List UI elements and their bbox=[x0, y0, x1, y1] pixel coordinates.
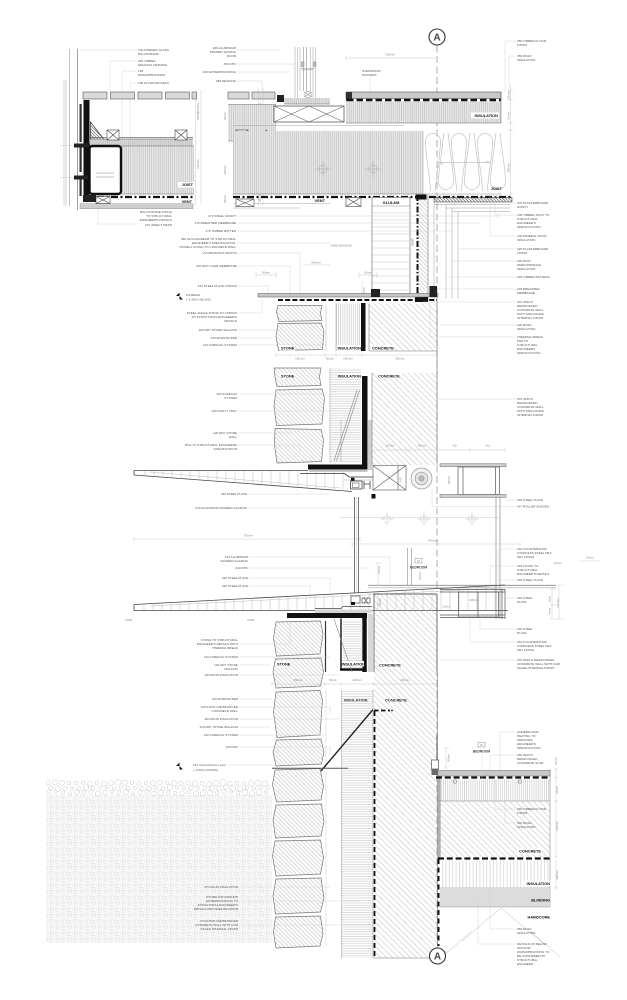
svg-text:HARDCORE: HARDCORE bbox=[528, 915, 551, 920]
svg-text:120 MORTAR BED: 120 MORTAR BED bbox=[212, 697, 239, 701]
svg-text:DOWELL FIXING TO CONCRETE WALL: DOWELL FIXING TO CONCRETE WALL bbox=[179, 245, 236, 249]
svg-text:205mm: 205mm bbox=[311, 261, 321, 265]
svg-text:A: A bbox=[433, 33, 440, 44]
svg-text:STONE: STONE bbox=[281, 374, 295, 379]
svg-text:SQ.: SQ. bbox=[486, 444, 491, 448]
svg-text:CONCRETE WALL: CONCRETE WALL bbox=[211, 709, 238, 713]
svg-text:120 RIGID INSULATION: 120 RIGID INSULATION bbox=[204, 673, 238, 677]
svg-text:UV RESISTANT MASTIC: UV RESISTANT MASTIC bbox=[202, 251, 238, 255]
svg-text:CONCRETE: CONCRETE bbox=[519, 849, 541, 854]
svg-text:150mm: 150mm bbox=[223, 165, 227, 175]
svg-text:+ 5.300 (+68.100): + 5.300 (+68.100) bbox=[186, 298, 211, 302]
svg-text:100mm: 100mm bbox=[352, 678, 362, 682]
svg-text:120 DPC: 120 DPC bbox=[225, 745, 238, 749]
svg-text:THERMAL BREAK: THERMAL BREAK bbox=[212, 646, 239, 650]
svg-text:50mm: 50mm bbox=[262, 271, 271, 275]
svg-text:240 STEEL PLATE: 240 STEEL PLATE bbox=[221, 492, 247, 496]
svg-text:270 TIMBER BATTEN: 270 TIMBER BATTEN bbox=[206, 229, 237, 233]
svg-text:100 PLYWOOD DECK: 100 PLYWOOD DECK bbox=[138, 81, 170, 85]
svg-text:75mm: 75mm bbox=[555, 785, 559, 794]
svg-text:LINING: LINING bbox=[517, 251, 528, 255]
svg-text:FINISH: FINISH bbox=[517, 43, 527, 47]
svg-text:FACED INTERNAL FINISH: FACED INTERNAL FINISH bbox=[517, 666, 554, 670]
svg-text:WALL: WALL bbox=[229, 435, 238, 439]
svg-text:BEDROOM: BEDROOM bbox=[410, 566, 427, 570]
svg-text:240 STEEL PLATE: 240 STEEL PLATE bbox=[222, 576, 248, 580]
svg-text:SPECIFICATION: SPECIFICATION bbox=[517, 351, 541, 355]
svg-text:US BEAM: US BEAM bbox=[186, 293, 200, 297]
svg-text:INSULATION: INSULATION bbox=[338, 374, 362, 379]
svg-text:427 ROLLER SHADES: 427 ROLLER SHADES bbox=[517, 505, 549, 509]
svg-text:JOIST: JOIST bbox=[491, 186, 503, 191]
svg-text:338mm: 338mm bbox=[385, 53, 395, 57]
svg-text:150mm: 150mm bbox=[293, 678, 303, 682]
svg-text:SQ.: SQ. bbox=[453, 444, 458, 448]
svg-text:DETAILS AND SPECIFICATION: DETAILS AND SPECIFICATION bbox=[194, 907, 238, 911]
svg-text:SPECIFICATION: SPECIFICATION bbox=[517, 225, 541, 229]
svg-text:+ 3.000 (+63.600): + 3.000 (+63.600) bbox=[193, 768, 218, 772]
svg-text:270 INSECT MESH: 270 INSECT MESH bbox=[145, 223, 172, 227]
svg-text:070 RIGID INSULATION: 070 RIGID INSULATION bbox=[204, 885, 238, 889]
svg-text:120 SURECAV SYSTEM: 120 SURECAV SYSTEM bbox=[204, 655, 239, 659]
svg-text:INSULATION: INSULATION bbox=[527, 881, 551, 886]
svg-text:200mm: 200mm bbox=[469, 598, 479, 602]
svg-text:10: 10 bbox=[417, 559, 421, 563]
svg-text:CONCRETE: CONCRETE bbox=[379, 663, 401, 668]
svg-text:20mm: 20mm bbox=[223, 111, 227, 120]
svg-text:160 WATERPROOFING: 160 WATERPROOFING bbox=[203, 70, 237, 74]
svg-text:PLATE: PLATE bbox=[517, 600, 527, 604]
svg-text:150mm: 150mm bbox=[556, 598, 560, 608]
svg-text:250 DPC: 250 DPC bbox=[223, 62, 236, 66]
svg-text:WATERPROOFING: WATERPROOFING bbox=[138, 73, 166, 77]
svg-text:50mm: 50mm bbox=[378, 597, 382, 606]
svg-text:210 ALUMINIUM FRAMED GLAZING: 210 ALUMINIUM FRAMED GLAZING bbox=[195, 506, 247, 510]
svg-text:CONCRETE SLAB: CONCRETE SLAB bbox=[517, 761, 543, 765]
svg-text:25mm: 25mm bbox=[554, 756, 558, 765]
svg-text:MEMBRANE: MEMBRANE bbox=[517, 291, 535, 295]
svg-text:INSULATION: INSULATION bbox=[517, 238, 535, 242]
svg-text:1500MM MIN: 1500MM MIN bbox=[196, 103, 200, 120]
svg-text:150mm: 150mm bbox=[295, 357, 305, 361]
svg-text:SPECIFICATION: SPECIFICATION bbox=[214, 447, 238, 451]
svg-text:INSULATION: INSULATION bbox=[517, 931, 535, 935]
svg-text:STONE: STONE bbox=[277, 662, 291, 667]
svg-text:9mm: 9mm bbox=[548, 595, 552, 602]
svg-text:STONE: STONE bbox=[281, 346, 295, 351]
svg-text:INSULATION: INSULATION bbox=[517, 327, 535, 331]
svg-text:410mm: 410mm bbox=[428, 539, 438, 543]
svg-text:25mm: 25mm bbox=[507, 90, 511, 99]
svg-text:DECKING FRAMING: DECKING FRAMING bbox=[138, 63, 168, 67]
svg-text:PLATE: PLATE bbox=[517, 631, 527, 635]
svg-text:10mm: 10mm bbox=[443, 605, 452, 609]
svg-text:120 CAVITY TRAY: 120 CAVITY TRAY bbox=[211, 409, 237, 413]
svg-text:FACED INTERNAL FINISH: FACED INTERNAL FINISH bbox=[201, 927, 238, 931]
svg-text:JOIST: JOIST bbox=[182, 182, 194, 187]
svg-text:50mm: 50mm bbox=[329, 678, 338, 682]
svg-text:90mm: 90mm bbox=[447, 475, 451, 484]
svg-text:VENT: VENT bbox=[315, 198, 326, 203]
svg-text:100mm: 100mm bbox=[343, 357, 353, 361]
svg-text:SOFFIT: SOFFIT bbox=[517, 205, 528, 209]
svg-text:SYSTEM: SYSTEM bbox=[224, 396, 237, 400]
svg-text:CONCRETE: CONCRETE bbox=[372, 346, 394, 351]
svg-text:50mm: 50mm bbox=[326, 357, 335, 361]
svg-text:75mm: 75mm bbox=[507, 111, 511, 120]
svg-text:SPECIFICATION: SPECIFICATION bbox=[517, 746, 541, 750]
svg-text:20mm: 20mm bbox=[364, 271, 373, 275]
svg-text:10: 10 bbox=[480, 743, 484, 747]
svg-text:25mm: 25mm bbox=[418, 571, 422, 580]
svg-text:320 TIMBER BATTENS: 320 TIMBER BATTENS bbox=[517, 275, 550, 279]
svg-text:120 SURECAV SYSTEM: 120 SURECAV SYSTEM bbox=[203, 343, 238, 347]
svg-text:DETAILS: DETAILS bbox=[224, 319, 237, 323]
svg-text:120 DRY STONE WALLING: 120 DRY STONE WALLING bbox=[199, 725, 238, 729]
svg-text:210 DPC: 210 DPC bbox=[235, 566, 248, 570]
svg-text:19mm: 19mm bbox=[586, 556, 595, 560]
svg-text:WALLING: WALLING bbox=[224, 667, 238, 671]
svg-text:10mm: 10mm bbox=[554, 561, 563, 565]
svg-text:INTERNAL FINISH: INTERNAL FINISH bbox=[517, 413, 543, 417]
svg-text:150mm: 150mm bbox=[196, 159, 200, 169]
svg-text:90mm: 90mm bbox=[418, 444, 427, 448]
svg-text:GLULAM: GLULAM bbox=[383, 200, 400, 205]
svg-text:ENGINEER'S DETAILS: ENGINEER'S DETAILS bbox=[140, 218, 172, 222]
svg-text:120 STEEL PLATE COPING: 120 STEEL PLATE COPING bbox=[198, 284, 238, 288]
svg-text:FRAMED GLAZING: FRAMED GLAZING bbox=[220, 559, 248, 563]
svg-text:INSULATION: INSULATION bbox=[338, 346, 362, 351]
svg-text:270 BREATHER MEMBRANE: 270 BREATHER MEMBRANE bbox=[195, 221, 236, 225]
svg-text:70MM MINIMUM: 70MM MINIMUM bbox=[330, 244, 352, 248]
svg-text:103mm: 103mm bbox=[555, 821, 559, 831]
svg-text:100mm: 100mm bbox=[555, 870, 559, 880]
svg-text:200mm: 200mm bbox=[507, 163, 511, 173]
svg-text:FINISH: FINISH bbox=[517, 811, 527, 815]
svg-text:BALUSTRADE: BALUSTRADE bbox=[138, 52, 159, 56]
svg-text:VENT: VENT bbox=[182, 199, 193, 204]
svg-text:100: 100 bbox=[399, 477, 403, 482]
svg-text:110mm: 110mm bbox=[385, 444, 395, 448]
svg-text:KEY FIXING: KEY FIXING bbox=[517, 648, 535, 652]
svg-text:70mm: 70mm bbox=[377, 565, 381, 574]
svg-text:120 RIGID INSULATION: 120 RIGID INSULATION bbox=[204, 717, 238, 721]
svg-text:INSULATION: INSULATION bbox=[517, 825, 535, 829]
svg-text:250mm: 250mm bbox=[395, 357, 405, 361]
svg-text:9mm: 9mm bbox=[548, 607, 552, 614]
svg-text:INSULATION: INSULATION bbox=[517, 267, 535, 271]
svg-text:INTERNAL FINISH: INTERNAL FINISH bbox=[517, 316, 543, 320]
svg-text:240 STEEL PLATE: 240 STEEL PLATE bbox=[517, 578, 543, 582]
svg-text:VENT: VENT bbox=[411, 238, 415, 246]
svg-text:CONCRETE: CONCRETE bbox=[378, 374, 400, 379]
svg-text:240 STEEL PLATE: 240 STEEL PLATE bbox=[222, 584, 248, 588]
svg-text:285 DECKING: 285 DECKING bbox=[216, 79, 237, 83]
svg-text:DOOR: DOOR bbox=[227, 54, 237, 58]
svg-text:INSULATION: INSULATION bbox=[517, 58, 535, 62]
svg-text:20mm: 20mm bbox=[447, 753, 451, 762]
svg-text:ENGINEER'S DETAILS: ENGINEER'S DETAILS bbox=[517, 572, 549, 576]
svg-text:BLINDING: BLINDING bbox=[531, 898, 550, 903]
svg-text:20mm: 20mm bbox=[223, 194, 227, 203]
svg-text:INSULATION: INSULATION bbox=[475, 113, 499, 118]
svg-text:120 SURECAV SYSTEM: 120 SURECAV SYSTEM bbox=[204, 733, 239, 737]
svg-text:270 STEEL SOFFIT: 270 STEEL SOFFIT bbox=[208, 214, 236, 218]
svg-text:240 STEEL PLATE: 240 STEEL PLATE bbox=[517, 498, 543, 502]
svg-text:DRIP: DRIP bbox=[248, 618, 255, 622]
svg-text:PACKERS: PACKERS bbox=[362, 73, 377, 77]
svg-text:ENGINEER: ENGINEER bbox=[517, 962, 534, 966]
svg-text:120 DRY STONE WALLING: 120 DRY STONE WALLING bbox=[198, 328, 237, 332]
svg-text:INSULATION: INSULATION bbox=[342, 662, 366, 667]
svg-text:A: A bbox=[434, 952, 441, 963]
svg-text:KEY FIXING: KEY FIXING bbox=[517, 555, 535, 559]
svg-text:FFL Ground Floor Level: FFL Ground Floor Level bbox=[193, 763, 226, 767]
svg-text:DRIP: DRIP bbox=[126, 618, 133, 622]
svg-text:730mm: 730mm bbox=[243, 534, 253, 538]
svg-text:BEDROOM: BEDROOM bbox=[473, 750, 490, 754]
svg-text:120 MORTAR BED: 120 MORTAR BED bbox=[211, 336, 238, 340]
svg-text:120 DPC OVER MEMBRANE: 120 DPC OVER MEMBRANE bbox=[196, 264, 237, 268]
